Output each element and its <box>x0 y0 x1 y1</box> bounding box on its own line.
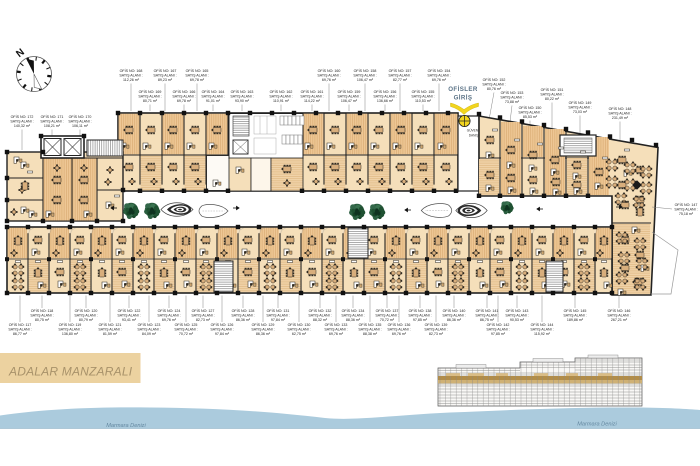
svg-text:OFİS NO: 148SATIŞ ALANI :231,4: OFİS NO: 148SATIŞ ALANI :231,49 m² <box>608 106 631 120</box>
svg-text:OFİS NO: 154SATIŞ ALANI :69,76: OFİS NO: 154SATIŞ ALANI :69,76 m² <box>427 68 450 82</box>
svg-text:OFİS NO: 134SATIŞ ALANI :88,36: OFİS NO: 134SATIŞ ALANI :88,36 m² <box>341 308 364 322</box>
svg-text:OFİS NO: 153SATIŞ ALANI :73,88: OFİS NO: 153SATIŞ ALANI :73,88 m² <box>500 90 523 104</box>
svg-text:OFİS NO: 166SATIŞ ALANI :69,78: OFİS NO: 166SATIŞ ALANI :69,78 m² <box>172 89 195 103</box>
svg-text:OFİS NO: 125SATIŞ ALANI :70,72: OFİS NO: 125SATIŞ ALANI :70,72 m² <box>174 322 197 336</box>
svg-text:OFİS NO: 144SATIŞ ALANI :115,9: OFİS NO: 144SATIŞ ALANI :115,92 m² <box>530 322 553 336</box>
svg-text:OFİS NO: 169SATIŞ ALANI :80,71: OFİS NO: 169SATIŞ ALANI :80,71 m² <box>138 89 161 103</box>
svg-text:OFİS NO: 163SATIŞ ALANI :93,90: OFİS NO: 163SATIŞ ALANI :93,90 m² <box>230 89 253 103</box>
svg-text:OFİS NO: 162SATIŞ ALANI :110,9: OFİS NO: 162SATIŞ ALANI :110,91 m² <box>269 89 292 103</box>
svg-text:OFİS NO: 139SATIŞ ALANI :82,73: OFİS NO: 139SATIŞ ALANI :82,73 m² <box>424 322 447 336</box>
svg-text:OFİS NO: 172SATIŞ ALANI :140,3: OFİS NO: 172SATIŞ ALANI :140,32 m² <box>10 114 33 128</box>
svg-text:OFİS NO: 137SATIŞ ALANI :70,72: OFİS NO: 137SATIŞ ALANI :70,72 m² <box>375 308 398 322</box>
svg-text:OFİS NO: 152SATIŞ ALANI :80,76: OFİS NO: 152SATIŞ ALANI :80,76 m² <box>482 77 505 91</box>
svg-text:OFİS NO: 120SATIŞ ALANI :80,79: OFİS NO: 120SATIŞ ALANI :80,79 m² <box>74 308 97 322</box>
svg-text:OFİS NO: 119SATIŞ ALANI :136,8: OFİS NO: 119SATIŞ ALANI :136,80 m² <box>58 322 81 336</box>
svg-text:OFİS NO: 136SATIŞ ALANI :69,76: OFİS NO: 136SATIŞ ALANI :69,76 m² <box>387 322 410 336</box>
svg-text:OFİS NO: 149SATIŞ ALANI :73,03: OFİS NO: 149SATIŞ ALANI :73,03 m² <box>568 100 591 114</box>
svg-text:OFİS NO: 135SATIŞ ALANI :88,38: OFİS NO: 135SATIŞ ALANI :88,38 m² <box>358 322 381 336</box>
svg-text:OFİS NO: 159SATIŞ ALANI :106,4: OFİS NO: 159SATIŞ ALANI :106,47 m² <box>337 89 360 103</box>
svg-text:GİRİŞ: GİRİŞ <box>454 95 473 102</box>
svg-text:OFİS NO: 167SATIŞ ALANI :89,23: OFİS NO: 167SATIŞ ALANI :89,23 m² <box>153 68 176 82</box>
svg-text:OFİS NO: 155SATIŞ ALANI :110,5: OFİS NO: 155SATIŞ ALANI :110,53 m² <box>411 89 434 103</box>
svg-text:OFİS NO: 130SATIŞ ALANI :62,75: OFİS NO: 130SATIŞ ALANI :62,75 m² <box>287 322 310 336</box>
svg-text:OFİS NO: 128SATIŞ ALANI :86,36: OFİS NO: 128SATIŞ ALANI :86,36 m² <box>231 308 254 322</box>
svg-text:OFİS NO: 131SATIŞ ALANI :97,84: OFİS NO: 131SATIŞ ALANI :97,84 m² <box>266 308 289 322</box>
svg-text:OFİS NO: 164SATIŞ ALANI :91,01: OFİS NO: 164SATIŞ ALANI :91,01 m² <box>201 89 224 103</box>
svg-text:OFİS NO: 118SATIŞ ALANI :80,75: OFİS NO: 118SATIŞ ALANI :80,75 m² <box>30 308 53 322</box>
svg-text:OFİS NO: 151SATIŞ ALANI :80,22: OFİS NO: 151SATIŞ ALANI :80,22 m² <box>540 87 563 101</box>
svg-text:OFİS NO: 142SATIŞ ALANI :97,85: OFİS NO: 142SATIŞ ALANI :97,85 m² <box>486 322 509 336</box>
svg-text:OFİS NO: 168SATIŞ ALANI :112,2: OFİS NO: 168SATIŞ ALANI :112,26 m² <box>119 68 142 82</box>
svg-text:OFİS NO: 157SATIŞ ALANI :82,77: OFİS NO: 157SATIŞ ALANI :82,77 m² <box>388 68 411 82</box>
svg-text:OFİS NO: 123SATIŞ ALANI :84,09: OFİS NO: 123SATIŞ ALANI :84,09 m² <box>137 322 160 336</box>
svg-text:OFİS NO: 133SATIŞ ALANI :69,76: OFİS NO: 133SATIŞ ALANI :69,76 m² <box>324 322 347 336</box>
svg-text:OFİS NO: 117SATIŞ ALANI :86,77: OFİS NO: 117SATIŞ ALANI :86,77 m² <box>8 322 31 336</box>
svg-text:OFİS NO: 141SATIŞ ALANI :86,75: OFİS NO: 141SATIŞ ALANI :86,75 m² <box>475 308 498 322</box>
svg-text:OFİS NO: 165SATIŞ ALANI :69,78: OFİS NO: 165SATIŞ ALANI :69,78 m² <box>185 68 208 82</box>
svg-text:OFİS NO: 121SATIŞ ALANI :81,59: OFİS NO: 121SATIŞ ALANI :81,59 m² <box>98 322 121 336</box>
svg-text:OFİS NO: 147SATIŞ ALANI :75,18: OFİS NO: 147SATIŞ ALANI :75,18 m² <box>674 202 697 216</box>
svg-text:OFİS NO: 156SATIŞ ALANI :136,6: OFİS NO: 156SATIŞ ALANI :136,66 m² <box>373 89 396 103</box>
svg-text:OFİS NO: 132SATIŞ ALANI :88,32: OFİS NO: 132SATIŞ ALANI :88,32 m² <box>308 308 331 322</box>
svg-text:OFİS NO: 126SATIŞ ALANI :97,84: OFİS NO: 126SATIŞ ALANI :97,84 m² <box>210 322 233 336</box>
svg-text:OFİS NO: 170SATIŞ ALANI :106,1: OFİS NO: 170SATIŞ ALANI :106,11 m² <box>68 114 91 128</box>
svg-text:OFİS NO: 160SATIŞ ALANI :69,76: OFİS NO: 160SATIŞ ALANI :69,76 m² <box>317 68 340 82</box>
svg-text:N: N <box>14 47 26 60</box>
svg-text:OFİS NO: 161SATIŞ ALANI :114,2: OFİS NO: 161SATIŞ ALANI :114,22 m² <box>300 89 323 103</box>
svg-text:OFİS NO: 145SATIŞ ALANI :189,8: OFİS NO: 145SATIŞ ALANI :189,86 m² <box>563 308 586 322</box>
svg-text:OFİS NO: 140SATIŞ ALANI :86,36: OFİS NO: 140SATIŞ ALANI :86,36 m² <box>442 308 465 322</box>
svg-text:OFİS NO: 122SATIŞ ALANI :93,41: OFİS NO: 122SATIŞ ALANI :93,41 m² <box>117 308 140 322</box>
svg-text:Marmara Denizi: Marmara Denizi <box>577 422 617 428</box>
svg-text:OFİS NO: 138SATIŞ ALANI :97,85: OFİS NO: 138SATIŞ ALANI :97,85 m² <box>408 308 431 322</box>
svg-text:OFİSLER: OFİSLER <box>448 86 478 93</box>
svg-text:OFİS NO: 146SATIŞ ALANI :267,2: OFİS NO: 146SATIŞ ALANI :267,21 m² <box>607 308 630 322</box>
svg-text:Marmara Denizi: Marmara Denizi <box>106 423 146 429</box>
svg-text:OFİS NO: 129SATIŞ ALANI :86,36: OFİS NO: 129SATIŞ ALANI :86,36 m² <box>251 322 274 336</box>
svg-text:OFİS NO: 127SATIŞ ALANI :82,73: OFİS NO: 127SATIŞ ALANI :82,73 m² <box>191 308 214 322</box>
svg-text:OFİS NO: 150SATIŞ ALANI :85,53: OFİS NO: 150SATIŞ ALANI :85,53 m² <box>518 105 541 119</box>
svg-text:OFİS NO: 171SATIŞ ALANI :108,2: OFİS NO: 171SATIŞ ALANI :108,21 m² <box>40 114 63 128</box>
svg-text:ADALAR MANZARALI: ADALAR MANZARALI <box>8 365 133 379</box>
svg-text:OFİS NO: 124SATIŞ ALANI :69,76: OFİS NO: 124SATIŞ ALANI :69,76 m² <box>157 308 180 322</box>
svg-text:OFİS NO: 158SATIŞ ALANI :106,4: OFİS NO: 158SATIŞ ALANI :106,47 m² <box>353 68 376 82</box>
svg-text:OFİS NO: 143SATIŞ ALANI :90,53: OFİS NO: 143SATIŞ ALANI :90,53 m² <box>505 308 528 322</box>
